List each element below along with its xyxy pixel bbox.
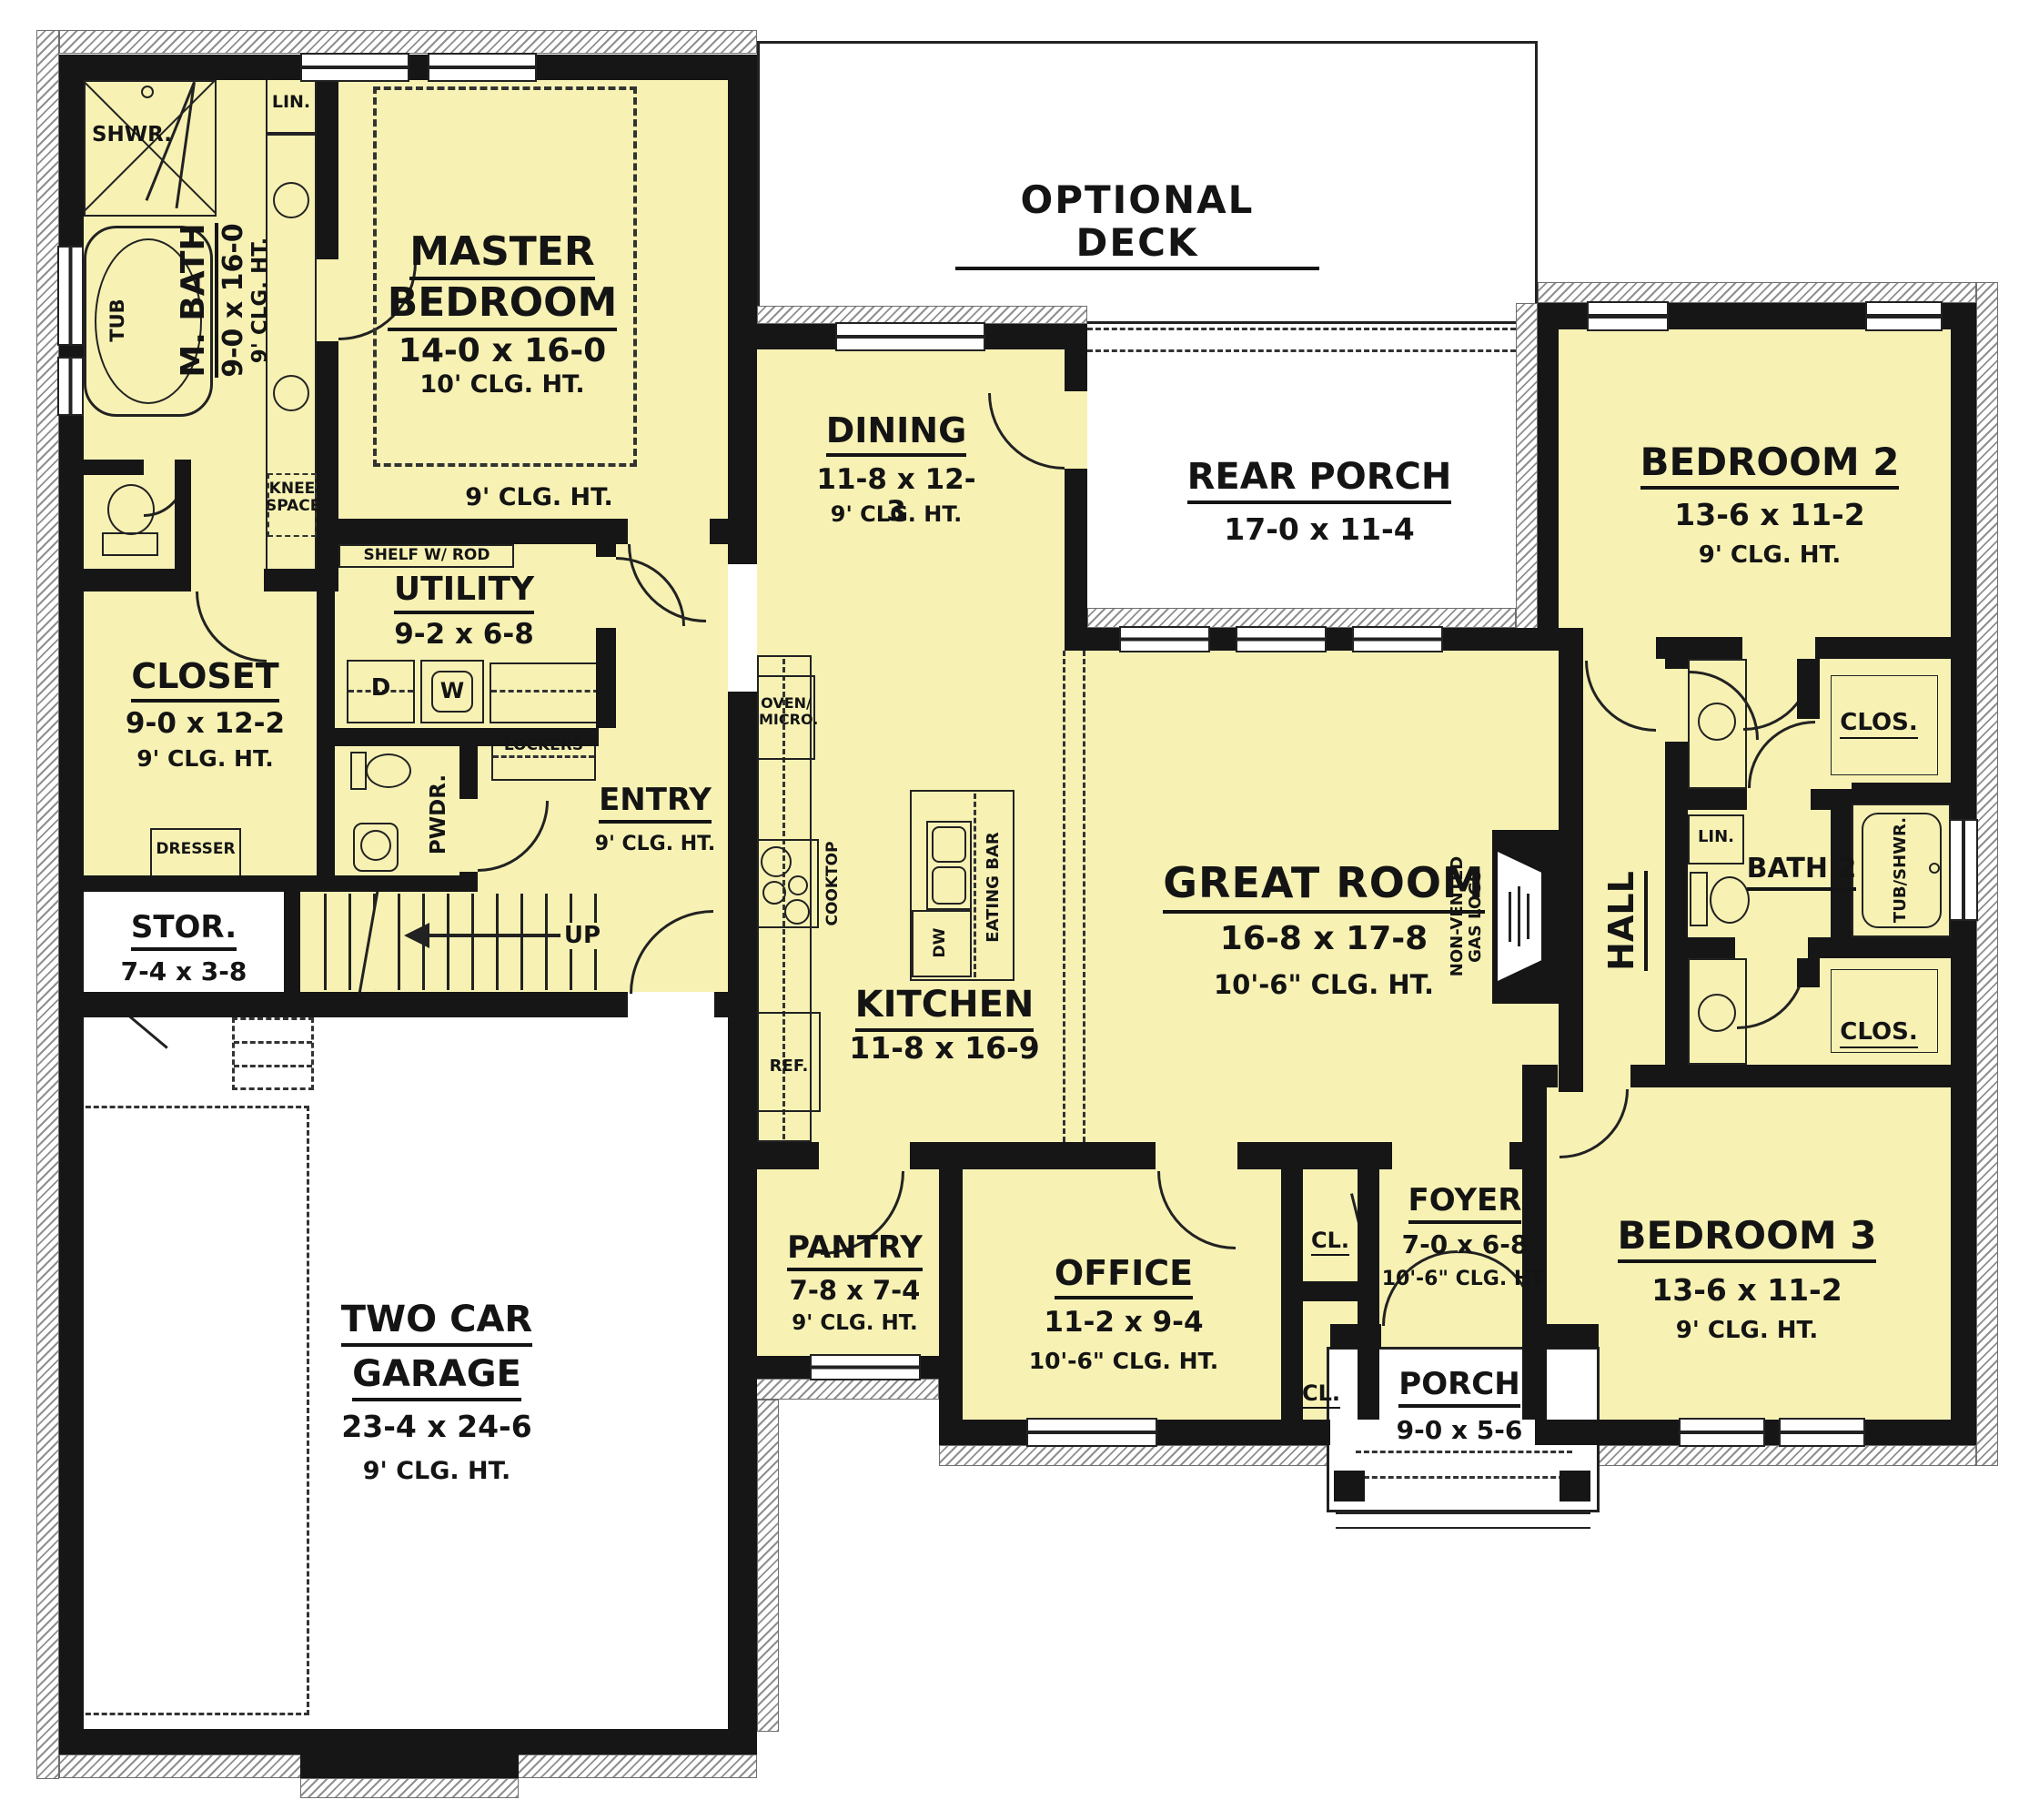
window (1779, 1418, 1865, 1447)
wall (1656, 637, 1742, 659)
wall (1303, 1281, 1358, 1301)
hatch-dining-top (757, 306, 1087, 324)
wall (728, 328, 757, 564)
label-ref: REF. (759, 1057, 819, 1076)
room-clg-entry: 9' CLG. HT. (582, 834, 728, 856)
toilet-tank (350, 752, 367, 790)
label-lin-bath2: LIN. (1686, 828, 1746, 846)
label-washer: W (431, 679, 473, 703)
burner (761, 846, 792, 877)
wall (59, 1729, 757, 1754)
garage-dashed-area (77, 1106, 309, 1715)
label-eating-bar: EATING BAR (975, 819, 1012, 955)
sink (1698, 994, 1736, 1032)
room-label-bed3: BEDROOM 3 (1579, 1214, 1915, 1263)
gas-logs-icon (1527, 894, 1529, 939)
window (810, 1354, 921, 1380)
room-label-mbath: M. BATH 9-0 x 16-0 9' CLG. HT. (151, 164, 297, 437)
room-label-bath2: BATH 2 (1733, 854, 1870, 891)
room-clg-master-outer: 9' CLG. HT. (450, 484, 628, 511)
shower-head-icon (141, 86, 154, 98)
label-lin-mbath: LIN. (266, 93, 317, 112)
window (57, 246, 84, 346)
room-dims-bed2: 13-6 x 11-2 (1601, 499, 1938, 532)
room-label-closet: CLOSET (107, 657, 303, 703)
room-label-rear-porch: REAR PORCH (1169, 457, 1469, 504)
room-label-garage: GARAGE (328, 1354, 546, 1401)
wall (1630, 1065, 1976, 1087)
label-dresser: DRESSER (152, 841, 239, 858)
porch-step (1356, 1476, 1572, 1479)
wall (1516, 628, 1559, 651)
wall (317, 341, 338, 582)
room-dims-kitchen: 11-8 x 16-9 (835, 1032, 1054, 1066)
hatch-pantry-bottom (746, 1379, 939, 1400)
wall (1065, 469, 1087, 651)
label-dryer: D (347, 675, 415, 702)
label-up: UP (560, 923, 604, 949)
room-label-master: MASTER (366, 229, 639, 280)
wall (317, 55, 338, 259)
wall (59, 992, 628, 1017)
label-cooktop: COOKTOP (815, 838, 852, 929)
porch-column (1560, 1471, 1590, 1501)
lockers-line (493, 755, 594, 758)
wall (910, 1142, 1087, 1169)
utility-counter (490, 662, 601, 723)
hatch-garage-step (300, 1778, 519, 1798)
room-clg-master: 10' CLG. HT. (366, 371, 639, 399)
room-label-dining: DINING (810, 411, 983, 457)
deck-label: OPTIONAL DECK (955, 178, 1319, 270)
room-dims-foyer: 7-0 x 6-8 (1383, 1230, 1547, 1259)
room-clg-foyer: 10'-6" CLG. HT. (1363, 1269, 1568, 1291)
wall (1688, 789, 1747, 810)
room-label-foyer: FOYER (1383, 1183, 1547, 1224)
hatch-bed3-bottom (1535, 1445, 1976, 1466)
window (1587, 301, 1669, 331)
stairs-arrow-line (428, 934, 562, 937)
wall (1559, 1004, 1583, 1092)
wall (757, 1142, 819, 1169)
hatch-right-wall (1976, 282, 1998, 1466)
room-clg-dining: 9' CLG. HT. (810, 502, 983, 527)
ceiling-break (1063, 651, 1065, 1142)
stairs-projection (232, 1017, 314, 1090)
toilet-bowl (107, 484, 155, 535)
floor-plan: OPTIONAL DECK MASTER BEDROOM 14-0 x 16-0… (0, 0, 2029, 1820)
label-pwdr: PWDR. (412, 769, 467, 860)
wall (1509, 1142, 1522, 1169)
room-clg-bed2: 9' CLG. HT. (1601, 542, 1938, 569)
window (1119, 626, 1210, 652)
room-clg-closet: 9' CLG. HT. (107, 746, 303, 772)
wall (1379, 1142, 1392, 1169)
wall (1559, 651, 1583, 830)
wall (1852, 783, 1951, 804)
wall (84, 875, 478, 892)
label-cl-lower: CL. (1292, 1381, 1350, 1409)
porch-step-edge (1336, 1512, 1590, 1514)
window (1865, 301, 1943, 331)
toilet-bowl (366, 753, 411, 788)
label-oven-micro: OVEN/MICRO. (759, 695, 813, 728)
room-clg-bed3: 9' CLG. HT. (1579, 1318, 1915, 1344)
ceiling-break (1083, 651, 1085, 1142)
hatch-left-wall (36, 30, 59, 1779)
window (1026, 1418, 1157, 1447)
porch-step (1356, 1451, 1572, 1453)
room-clg-office: 10'-6" CLG. HT. (1014, 1349, 1233, 1374)
wall (1237, 1142, 1379, 1169)
room-label-pantry: PANTRY (775, 1230, 934, 1271)
burner (788, 875, 808, 895)
room-label-utility: UTILITY (382, 571, 546, 614)
window (1352, 626, 1443, 652)
gas-logs-icon (1518, 886, 1520, 946)
room-clg-garage: 9' CLG. HT. (328, 1458, 546, 1485)
wall (728, 1356, 757, 1729)
wall (1358, 1169, 1379, 1420)
label-gas-logs: NON-VENTEDGAS LOGS (1439, 825, 1494, 1007)
window (300, 53, 409, 82)
wall (1797, 659, 1820, 719)
wall (1688, 937, 1735, 958)
stairs-arrow-head (404, 923, 429, 948)
room-label-master: BEDROOM (366, 280, 639, 331)
label-lockers: LOCKERS (491, 737, 596, 754)
sink (1698, 703, 1736, 741)
wall (317, 569, 335, 892)
wall (175, 460, 191, 587)
stairs-projection-line (234, 1065, 312, 1067)
window (428, 53, 537, 82)
label-tub: TUB (91, 279, 146, 361)
wall (1797, 958, 1820, 987)
room-label-bed2: BEDROOM 2 (1601, 440, 1938, 490)
wall (596, 544, 616, 557)
room-dims-office: 11-2 x 9-4 (1024, 1307, 1224, 1339)
wall (1547, 1065, 1558, 1087)
room-dims-rear-porch: 17-0 x 11-4 (1169, 513, 1469, 547)
porch-step-edge (1336, 1527, 1590, 1529)
room-dims-bed3: 13-6 x 11-2 (1579, 1274, 1915, 1308)
label-knee-space: KNEESPACE (266, 480, 318, 515)
label-tub-shwr: TUB/SHWR. (1883, 802, 1919, 938)
wall (939, 1169, 963, 1420)
wall (728, 55, 757, 328)
label-shelf-rod: SHELF W/ ROD (340, 547, 513, 564)
room-dims-garage: 23-4 x 24-6 (328, 1410, 546, 1444)
room-dims-closet: 9-0 x 12-2 (107, 708, 303, 740)
room-label-entry: ENTRY (582, 783, 728, 824)
burner (762, 881, 786, 905)
hatch-garage-east (757, 1400, 779, 1732)
shower-head-icon (1929, 863, 1940, 874)
hatch-bed2-top (1538, 282, 1976, 303)
porch-beam (1087, 328, 1516, 330)
hatch-greatroom-top (1087, 608, 1516, 628)
wall (338, 519, 628, 544)
wall (1538, 303, 1559, 637)
room-dims-master: 14-0 x 16-0 (366, 333, 639, 369)
room-clg-pantry: 9' CLG. HT. (775, 1312, 934, 1336)
room-label-hall: HALL (1557, 853, 1693, 989)
window (835, 322, 985, 351)
wall (1065, 349, 1087, 391)
wall (1087, 1142, 1156, 1169)
room-dims-utility: 9-2 x 6-8 (382, 619, 546, 651)
wall (300, 1754, 519, 1778)
room-dims-pantry: 7-8 x 7-4 (775, 1276, 934, 1305)
gas-logs-icon (1509, 892, 1511, 942)
room-label-garage: TWO CAR (328, 1299, 546, 1347)
toilet-tank (102, 532, 158, 556)
window (1679, 1418, 1765, 1447)
room-label-kitchen: KITCHEN (835, 985, 1054, 1032)
room-dims-stor: 7-4 x 3-8 (111, 957, 257, 986)
wall (1815, 637, 1976, 659)
hatch-office-bottom (939, 1445, 1330, 1466)
label-dw: DW (923, 906, 959, 979)
window (57, 357, 84, 416)
stairs-projection-line (234, 1041, 312, 1044)
hatch-rearporch-east (1516, 303, 1538, 637)
hatch-top-master (59, 30, 757, 54)
sink (360, 830, 391, 861)
porch-beam (1087, 349, 1516, 352)
burner (784, 899, 810, 925)
porch-column (1334, 1471, 1365, 1501)
wall (84, 460, 144, 475)
room-label-stor: STOR. (111, 910, 257, 951)
wall (284, 892, 300, 1001)
wall (84, 569, 191, 591)
room-label-porch: PORCH (1381, 1367, 1538, 1408)
label-clos-upper: CLOS. (1820, 710, 1938, 739)
room-label-office: OFFICE (1024, 1254, 1224, 1299)
window (1949, 819, 1978, 921)
sink-basin (932, 866, 966, 905)
window (1236, 626, 1327, 652)
label-clos-lower: CLOS. (1820, 1019, 1938, 1048)
label-cl-upper: CL. (1301, 1228, 1359, 1256)
counter-line (491, 690, 599, 693)
wall (1665, 659, 1688, 669)
room-dims-porch: 9-0 x 5-6 (1381, 1416, 1538, 1444)
wall (728, 692, 757, 1356)
wall (1808, 937, 1951, 958)
wall (596, 628, 616, 728)
sink-basin (932, 826, 966, 863)
label-shwr: SHWR. (91, 124, 173, 147)
